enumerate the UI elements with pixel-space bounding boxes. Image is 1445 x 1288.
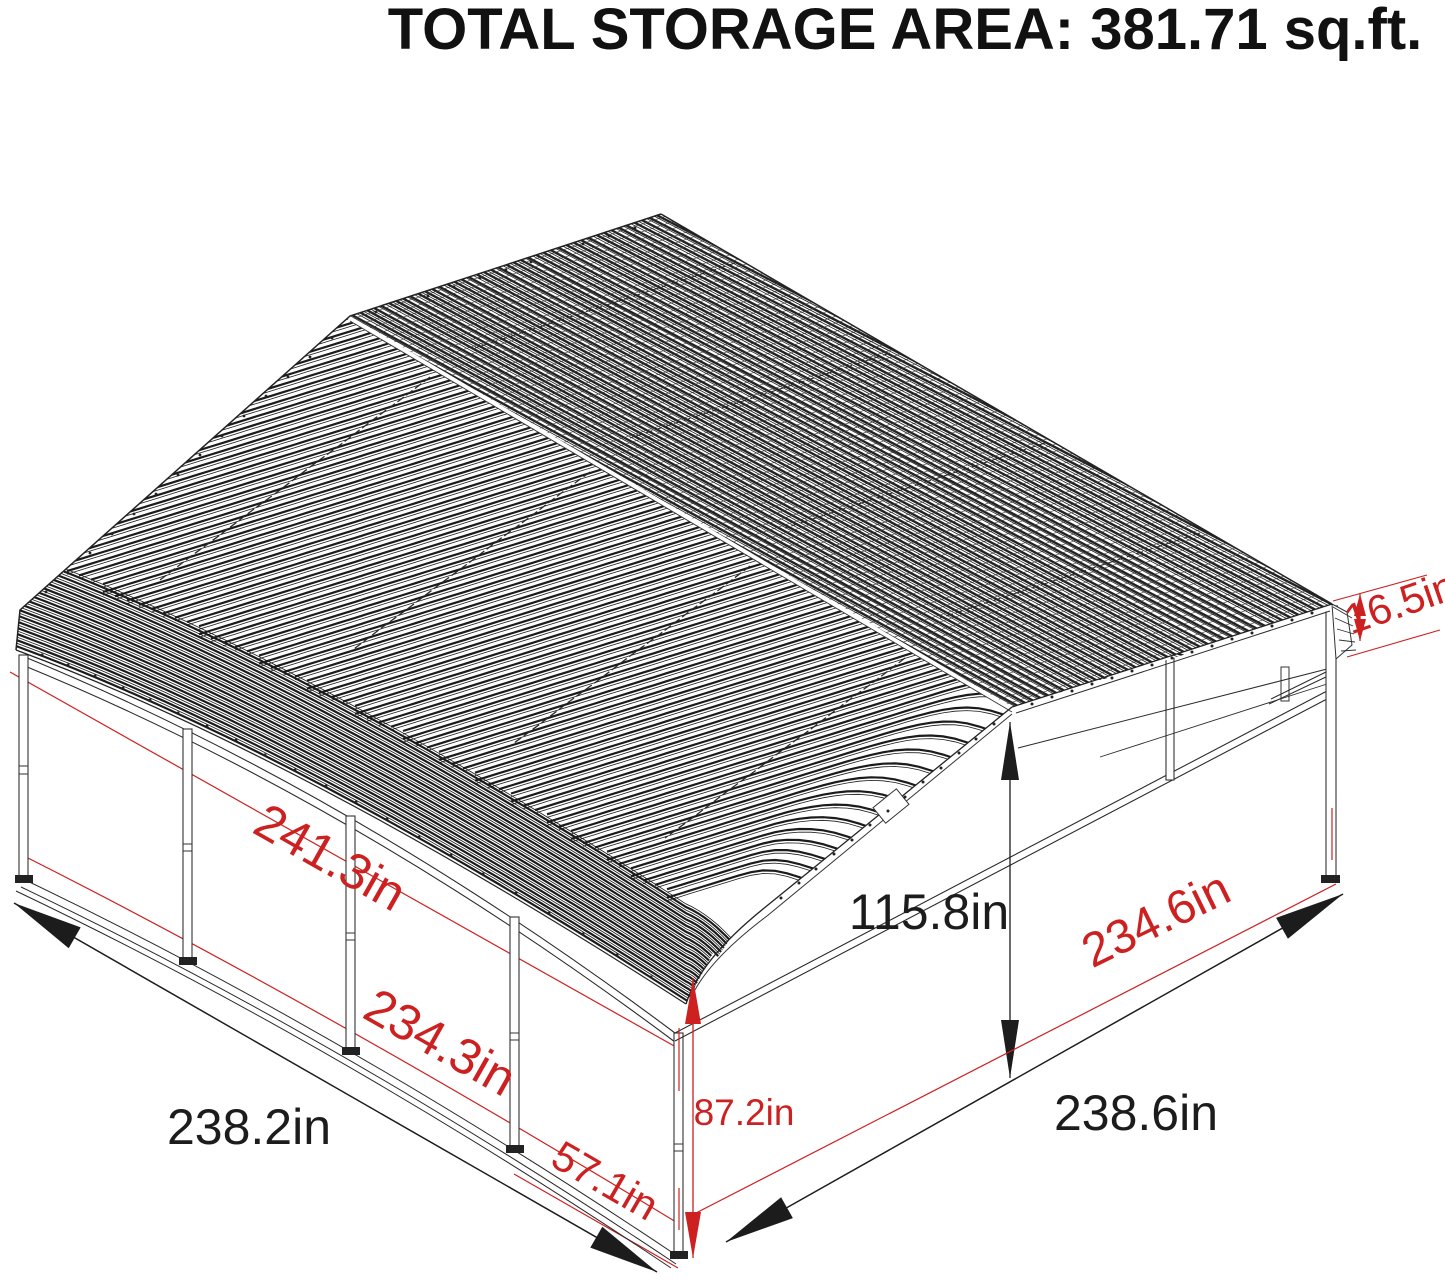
svg-text:115.8in: 115.8in [849, 884, 1009, 940]
svg-text:TOTAL STORAGE AREA: 381.71 sq.: TOTAL STORAGE AREA: 381.71 sq.ft. [388, 0, 1423, 62]
svg-text:238.2in: 238.2in [167, 1099, 331, 1155]
svg-text:238.6in: 238.6in [1054, 1085, 1218, 1141]
svg-text:87.2in: 87.2in [694, 1092, 795, 1133]
